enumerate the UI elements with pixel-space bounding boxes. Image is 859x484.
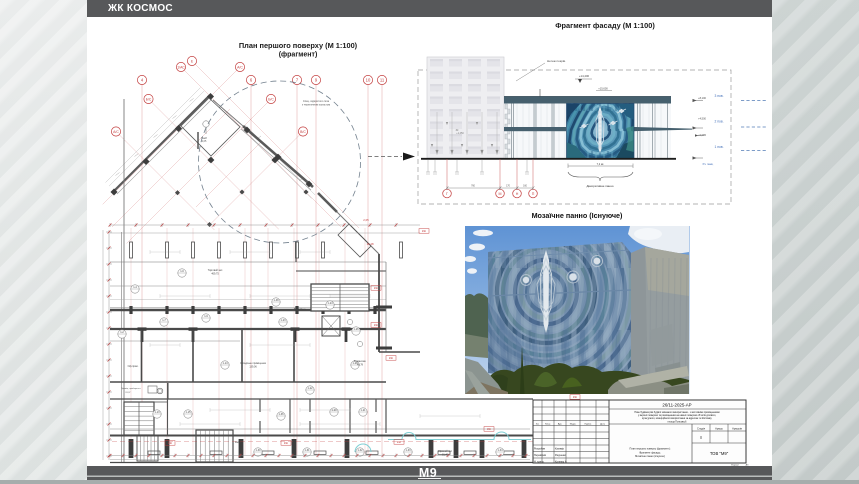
svg-text:1-22: 1-22	[307, 387, 313, 390]
svg-text:11: 11	[380, 78, 385, 83]
svg-text:КЖ: КЖ	[422, 229, 427, 233]
svg-text:+15,600: +15,600	[598, 87, 608, 91]
svg-text:Аркушів: Аркушів	[732, 427, 742, 431]
svg-text:Мозаїчне панно (існуюче): Мозаїчне панно (існуюче)	[635, 455, 665, 458]
svg-text:1-32: 1-32	[357, 449, 363, 452]
svg-text:П: П	[532, 192, 535, 196]
svg-text:81,37: 81,37	[125, 392, 131, 394]
svg-text:1-4: 1-4	[133, 286, 137, 289]
svg-text:19,48: 19,48	[367, 242, 374, 246]
svg-text:М: М	[499, 192, 502, 196]
svg-text:1-15: 1-15	[185, 411, 191, 414]
svg-text:1-21: 1-21	[360, 409, 366, 412]
svg-text:КЖ: КЖ	[374, 286, 379, 290]
svg-text:1-6: 1-6	[180, 270, 184, 273]
svg-text:1-26: 1-26	[353, 328, 359, 331]
svg-text:Фрагмент фасаду;: Фрагмент фасаду;	[639, 451, 661, 454]
svg-text:+14,400: +14,400	[579, 74, 590, 78]
svg-text:Фрагмент фасаду (М 1:100): Фрагмент фасаду (М 1:100)	[555, 21, 655, 30]
svg-text:Мозаїчне панно (Існуюче): Мозаїчне панно (Існуюче)	[532, 211, 623, 220]
svg-text:з черепичним захистом: з черепичним захистом	[302, 103, 330, 106]
svg-text:+4,500: +4,500	[698, 118, 706, 121]
svg-text:Г: Г	[446, 192, 448, 196]
svg-text:(фрагмент): (фрагмент)	[279, 52, 318, 59]
svg-text:ТОВ "М9": ТОВ "М9"	[710, 451, 729, 456]
svg-text:1-38: 1-38	[273, 299, 279, 302]
svg-text:2,05: 2,05	[363, 218, 369, 222]
svg-text:1-23: 1-23	[280, 319, 286, 322]
svg-text:КЖ: КЖ	[389, 356, 394, 360]
svg-text:КЖ: КЖ	[397, 440, 402, 444]
svg-text:Приміщ. прибиральн.: Приміщ. прибиральн.	[121, 387, 141, 390]
svg-text:Вестибюль: Вестибюль	[294, 308, 307, 311]
svg-text:1-30: 1-30	[255, 449, 261, 452]
svg-text:Радченко: Радченко	[555, 454, 567, 457]
svg-text:Оф.прим.: Оф.прим.	[128, 365, 139, 368]
svg-text:Арк.: Арк.	[558, 423, 563, 426]
svg-text:26/11-2025-АР: 26/11-2025-АР	[662, 403, 691, 408]
svg-text:Казимір: Казимір	[555, 448, 565, 451]
svg-text:Дата: Дата	[600, 424, 606, 426]
svg-text:139,06: 139,06	[249, 366, 257, 369]
svg-text:культурного, комерційного вико: культурного, комерційного використання з…	[642, 417, 713, 420]
svg-text:Котенко А: Котенко А	[555, 461, 567, 464]
svg-text:160: 160	[523, 186, 528, 188]
svg-text:Розробив: Розробив	[534, 448, 546, 451]
svg-text:1-20: 1-20	[331, 409, 337, 412]
svg-text:760: 760	[471, 186, 476, 188]
svg-text:3 пов.: 3 пов.	[714, 94, 723, 98]
svg-text:1-2: 1-2	[120, 331, 124, 334]
svg-text:Рз. панв,: Рз. панв,	[703, 162, 714, 166]
svg-text:Аркуш: Аркуш	[715, 427, 723, 431]
svg-text:Нетеж покрів.: Нетеж покрів.	[547, 59, 566, 63]
svg-text:1-9: 1-9	[204, 315, 208, 318]
svg-text:1-24: 1-24	[327, 302, 333, 305]
svg-text:у верхніх поверхах та розміщен: у верхніх поверхах та розміщенням на ниж…	[638, 414, 716, 417]
svg-text:А/С: А/С	[237, 66, 243, 70]
svg-text:площа Польова,6: площа Польова,6	[668, 421, 687, 423]
svg-text:2,05: 2,05	[202, 140, 207, 143]
svg-text:1-14: 1-14	[222, 362, 228, 365]
svg-text:Б/С: Б/С	[146, 98, 152, 102]
svg-text:469,75: 469,75	[211, 273, 219, 276]
svg-text:1-33: 1-33	[405, 449, 411, 452]
svg-text:Кафе: Кафе	[235, 441, 242, 444]
svg-text:Б/С: Б/С	[268, 98, 274, 102]
svg-text:Перевірив: Перевірив	[534, 454, 547, 457]
svg-text:1-13: 1-13	[154, 411, 160, 414]
svg-text:План першого поверху (М 1:100): План першого поверху (М 1:100)	[239, 41, 358, 50]
svg-text:1-36: 1-36	[278, 413, 284, 416]
svg-text:10: 10	[366, 78, 371, 83]
svg-text:КЖ: КЖ	[374, 323, 379, 327]
svg-text:1-31: 1-31	[304, 449, 310, 452]
svg-text:А/С: А/С	[113, 130, 119, 134]
svg-text:2 пов.: 2 пов.	[714, 120, 723, 124]
svg-text:Стадія: Стадія	[697, 427, 706, 431]
svg-text:КЖ: КЖ	[487, 427, 492, 431]
svg-text:Зм.: Зм.	[536, 424, 540, 426]
svg-text:Нове будівництво будівлі зміша: Нове будівництво будівлі змішаного викор…	[634, 411, 720, 414]
svg-text:№док.: №док.	[570, 423, 577, 426]
svg-text:Підпис: Підпис	[585, 423, 593, 426]
svg-text:1/АС: 1/АС	[177, 66, 185, 70]
svg-text:Спец. відкритого скла: Спец. відкритого скла	[303, 99, 330, 103]
svg-text:Н: Н	[516, 192, 519, 196]
svg-text:КЖ: КЖ	[573, 395, 578, 399]
svg-text:48,78: 48,78	[357, 364, 364, 367]
svg-text:Кільк.: Кільк.	[545, 423, 551, 426]
svg-text:КЖ: КЖ	[168, 441, 173, 445]
svg-text:7,2 кв: 7,2 кв	[597, 162, 604, 166]
svg-text:1-34: 1-34	[497, 449, 503, 452]
svg-text:+8,100: +8,100	[698, 97, 706, 100]
svg-text:+1,450: +1,450	[456, 132, 464, 135]
svg-text:Н. контр.: Н. контр.	[534, 461, 545, 464]
svg-text:Декоративне панно: Декоративне панно	[586, 184, 613, 188]
svg-text:А3: А3	[746, 464, 749, 467]
svg-text:1-7: 1-7	[162, 319, 166, 322]
svg-text:В/С: В/С	[300, 130, 306, 134]
svg-text:1 пов.: 1 пов.	[714, 145, 723, 149]
svg-text:170: 170	[506, 186, 511, 188]
svg-text:План першого поверху (фрагмент: План першого поверху (фрагмент):	[630, 448, 671, 451]
svg-text:КЖ: КЖ	[284, 441, 289, 445]
svg-text:Формат: Формат	[731, 464, 739, 467]
